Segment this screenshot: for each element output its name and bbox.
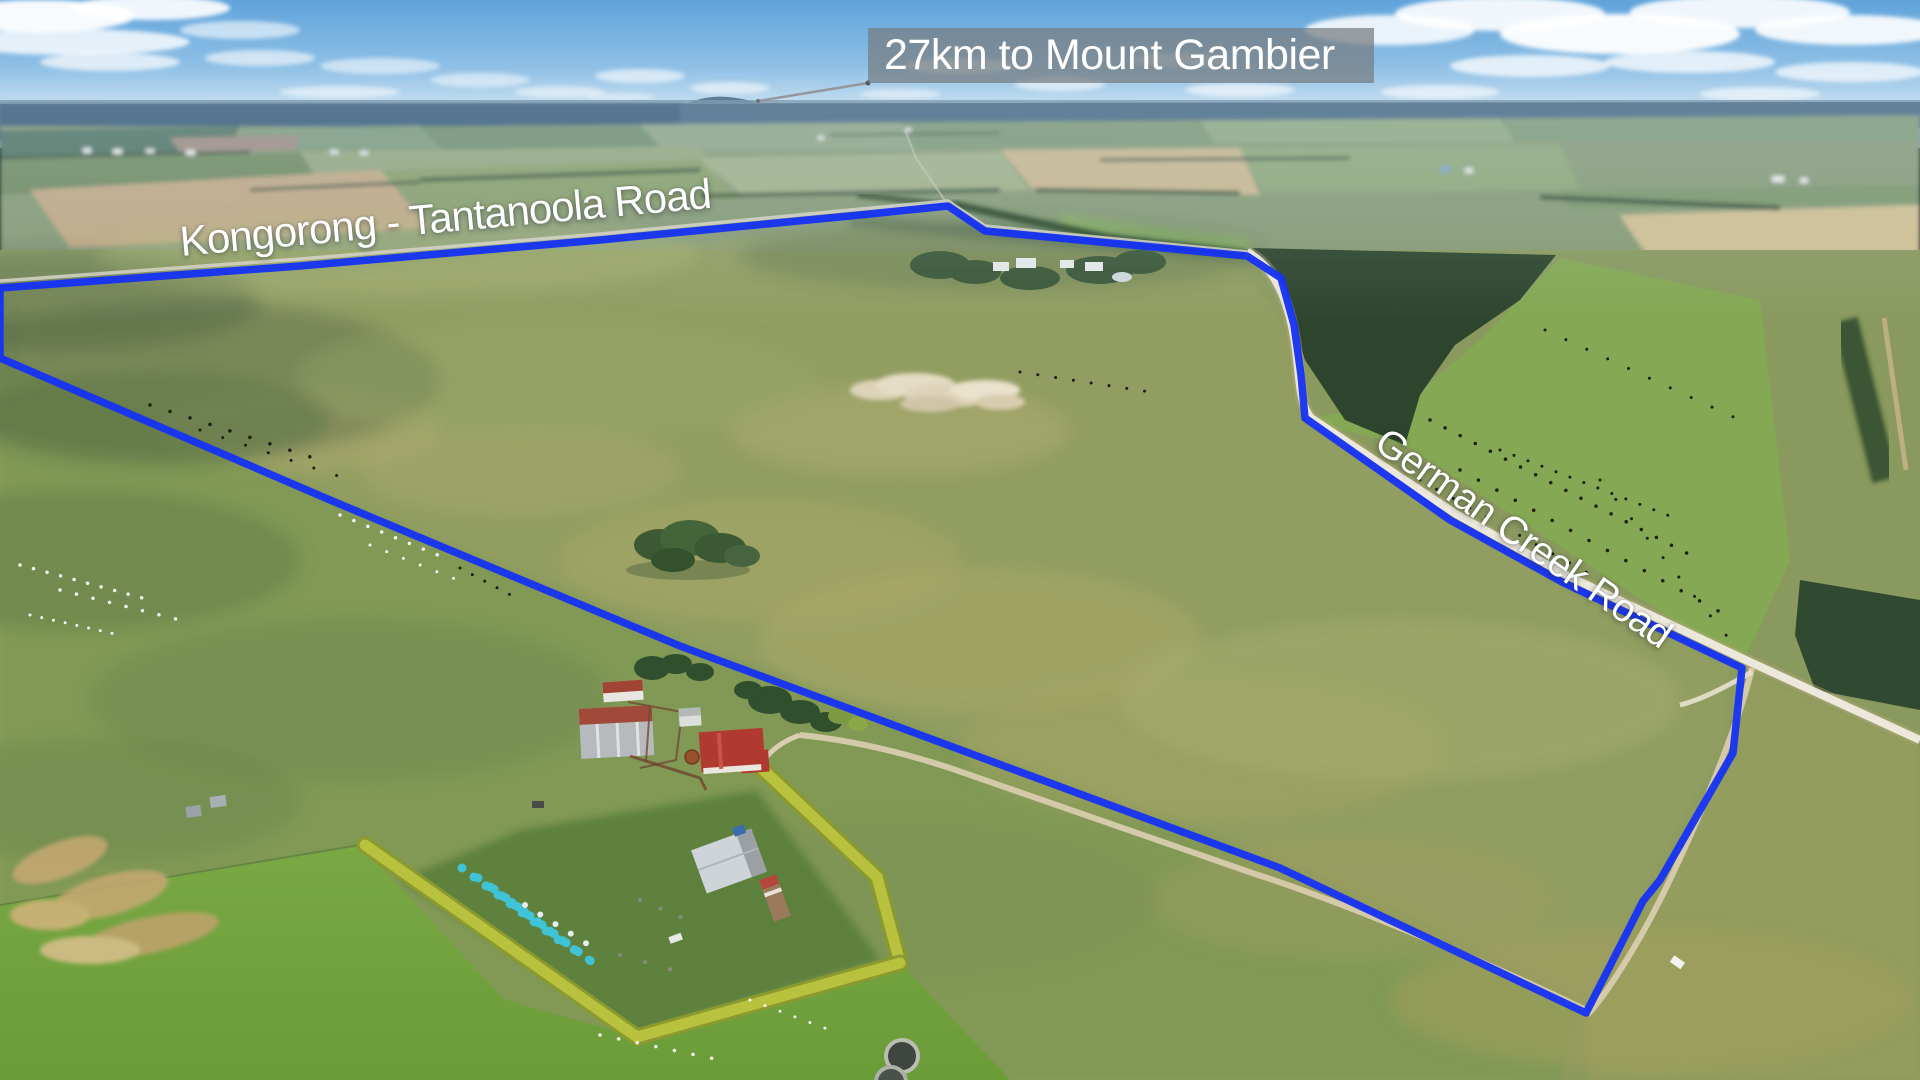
distance-callout: 27km to Mount Gambier (868, 28, 1374, 83)
landscape-scene (0, 0, 1920, 1080)
big-shed (579, 705, 655, 759)
white-hut (678, 707, 701, 726)
dark-car (532, 801, 544, 808)
aerial-property-photo: 27km to Mount Gambier Kongorong - Tantan… (0, 0, 1920, 1080)
distance-callout-text: 27km to Mount Gambier (884, 31, 1335, 80)
outbuilding-red-roof (602, 680, 643, 703)
water-tank-rust (685, 750, 699, 764)
main-house (699, 728, 770, 777)
